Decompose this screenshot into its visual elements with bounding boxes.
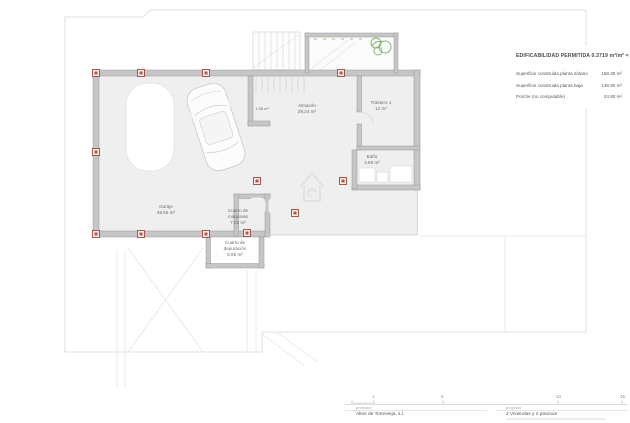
promotor-value: Altos de Torrevieja, s.l. <box>356 412 404 417</box>
surface-row: Superficie construida planta baja 139.80… <box>516 83 622 88</box>
surface-row: Porche (no computable) 24.80 m² <box>516 94 622 99</box>
scale-tick-15: 15 <box>620 394 625 399</box>
pillar-marker <box>203 70 210 77</box>
room-label-under-stairs: 1.08 m² <box>250 106 274 111</box>
pillar-marker <box>138 231 145 238</box>
surface-row-value: 24.80 m² <box>604 94 622 99</box>
scale-tick-5: 5 <box>441 394 444 399</box>
room-label-trastero: Trastero 1 12 m² <box>362 100 400 112</box>
pillar-marker <box>244 230 251 237</box>
pillar-marker <box>93 70 100 77</box>
pillar-marker <box>93 231 100 238</box>
room-label-maquinas: Cuarto de máquinas 7.05 m² <box>222 208 254 226</box>
pillar-marker <box>340 178 347 185</box>
floor-plan-drawing <box>0 0 630 423</box>
pillar-marker <box>138 70 145 77</box>
surface-row-label: Superficie construida planta baja <box>516 83 583 88</box>
room-label-bano: Baño 4.88 m² <box>356 154 388 166</box>
site-terrain-lines <box>117 236 586 388</box>
footer-fineprint-blur <box>506 418 606 420</box>
car-silhouette-icon <box>126 83 174 171</box>
promotor-label: promotor <box>356 406 372 410</box>
surface-row-value: 139.80 m² <box>601 83 622 88</box>
surface-row: Superficie construida planta sótano 168.… <box>516 71 622 76</box>
room-label-almacen: Almacén 29.24 m² <box>287 103 327 115</box>
surface-row-value: 168.39 m² <box>601 71 622 76</box>
pillar-marker <box>203 231 210 238</box>
scale-bar <box>345 401 628 405</box>
pillar-marker <box>338 70 345 77</box>
room-label-depuracion: Cuarto de depuración 5.85 m² <box>216 240 254 258</box>
scale-tick-1: 1 <box>372 394 375 399</box>
surface-row-label: Superficie construida planta sótano <box>516 71 588 76</box>
drawing-sheet: Garaje 38.65 m² 1.08 m² Almacén 29.24 m²… <box>0 0 630 423</box>
pillar-marker <box>292 210 299 217</box>
proyecto-value: 2 Viviendas y 2 piscinas <box>506 412 557 417</box>
surface-row-label: Porche (no computable) <box>516 94 565 99</box>
edificability-title: EDIFICABILIDAD PERMITIDA 0.3719 m²/m² = … <box>516 53 630 59</box>
pillar-marker <box>93 149 100 156</box>
room-label-garaje: Garaje 38.65 m² <box>146 204 186 216</box>
proyecto-label: proyecto <box>506 406 521 410</box>
scale-tick-10: 10 <box>556 394 561 399</box>
pillar-marker <box>254 178 261 185</box>
